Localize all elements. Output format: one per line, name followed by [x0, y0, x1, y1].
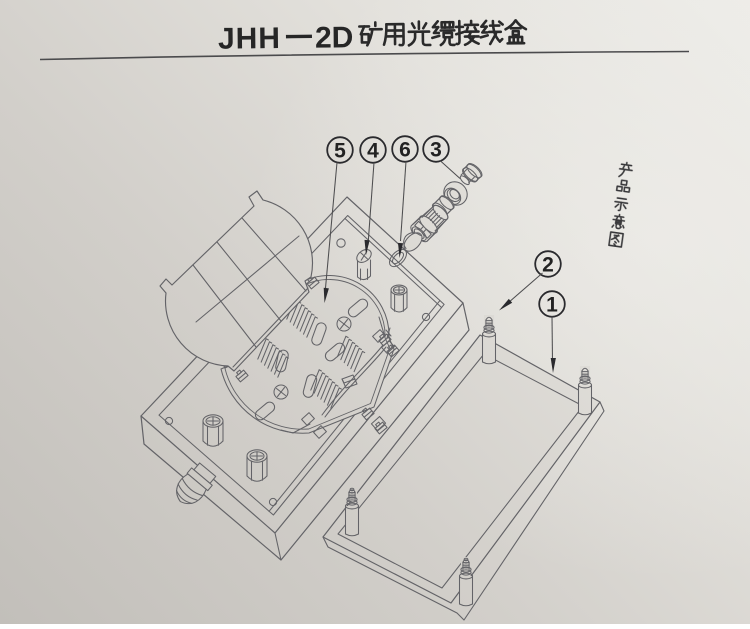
svg-text:1: 1 — [546, 294, 558, 317]
svg-text:JHH: JHH — [218, 22, 281, 56]
svg-text:4: 4 — [367, 140, 379, 163]
svg-text:2: 2 — [542, 254, 554, 277]
svg-text:2D: 2D — [315, 21, 354, 54]
svg-text:6: 6 — [399, 139, 411, 162]
svg-text:5: 5 — [334, 140, 346, 163]
svg-text:3: 3 — [430, 139, 442, 162]
